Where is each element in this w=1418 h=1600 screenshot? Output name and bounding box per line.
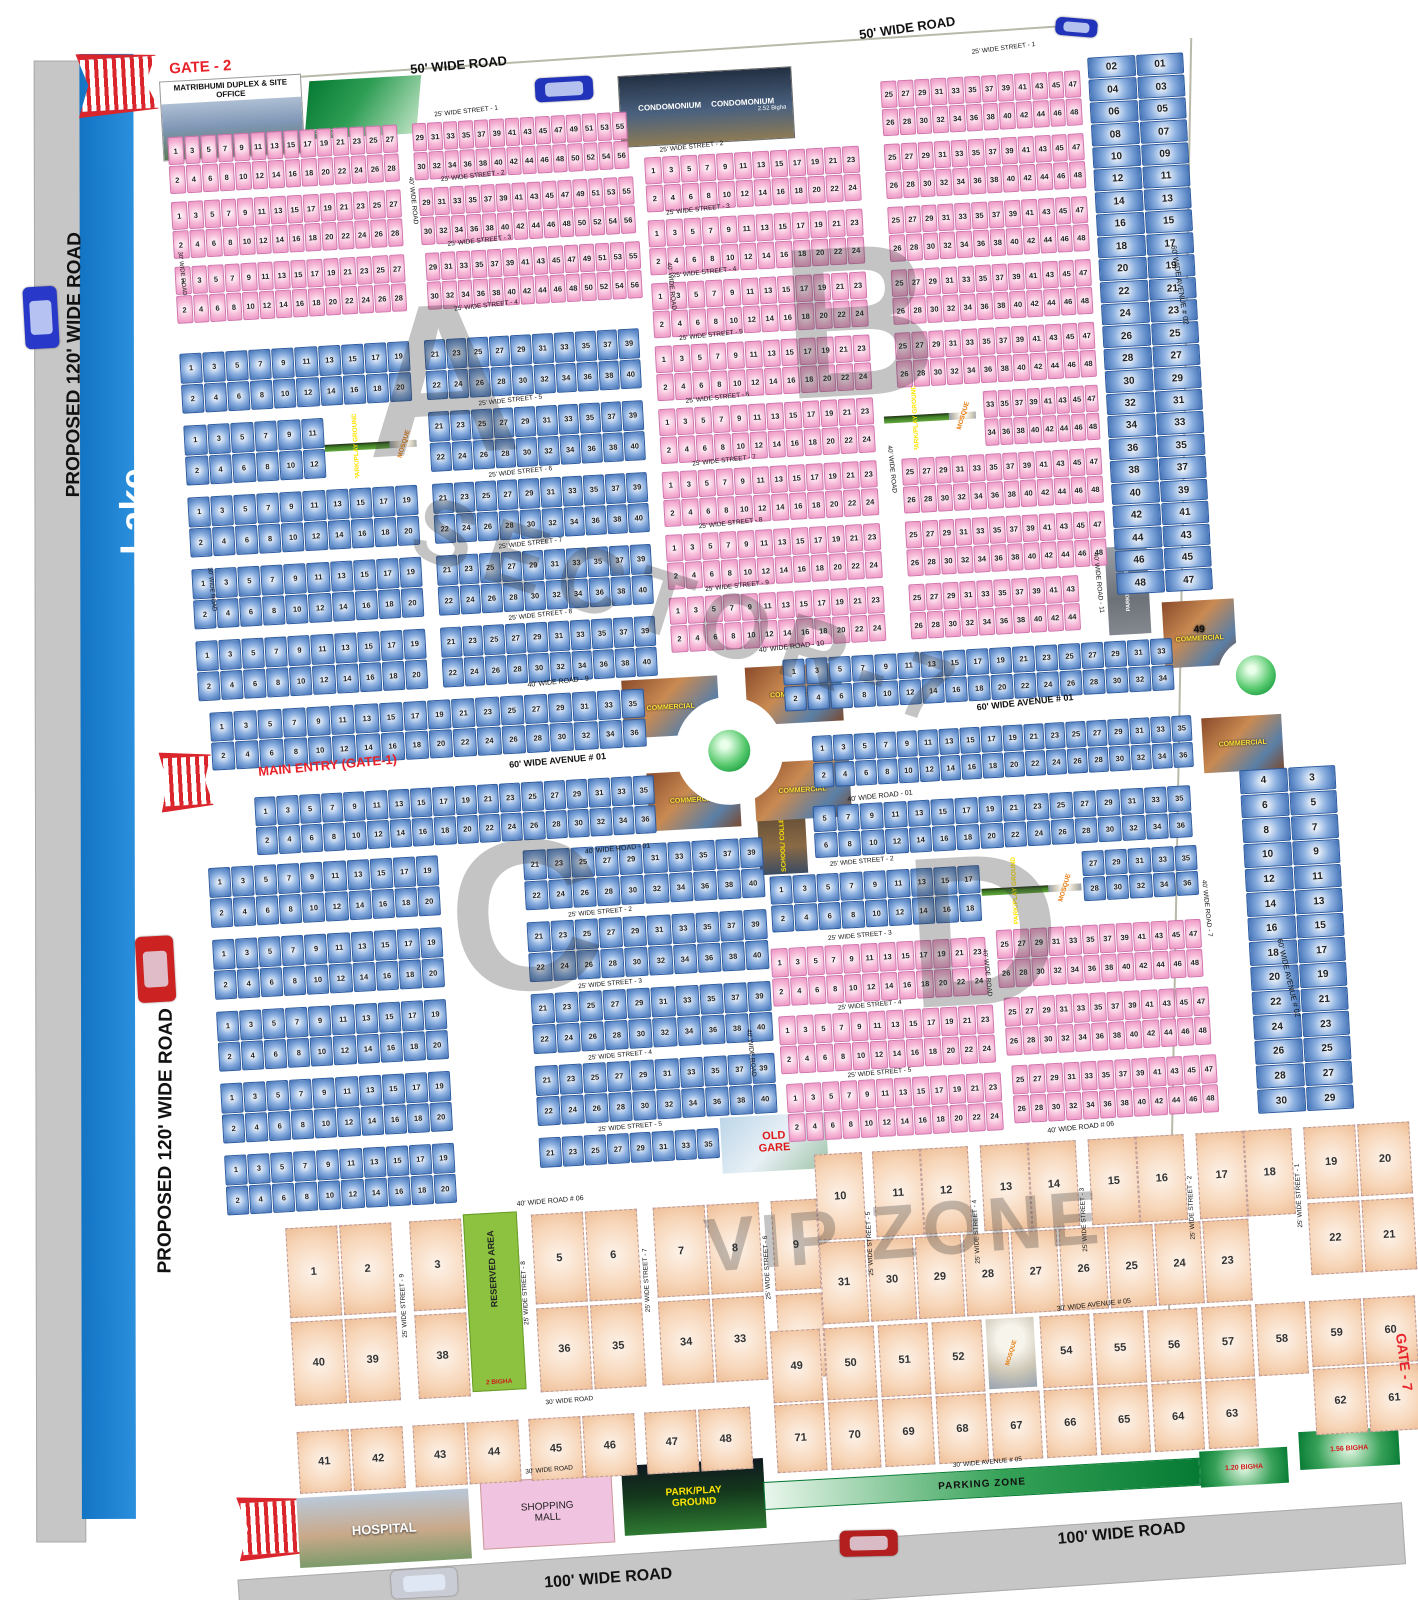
plot-cell: 54: [598, 141, 614, 170]
plot-cell: 12: [870, 1040, 889, 1069]
plot-cell: 22: [453, 727, 478, 757]
plot-block: 135791113151719212324681012141618202224: [655, 334, 873, 401]
plot-cell: 39: [1131, 1058, 1149, 1087]
plot-cell: 48: [1066, 98, 1083, 126]
plot-cell: 1: [812, 735, 834, 762]
plot-cell: 25: [901, 458, 918, 486]
plot-cell: 21: [966, 1073, 985, 1102]
plot-cell: 35: [583, 474, 605, 505]
plot-block: 2527293133353739414345472628303234363840…: [996, 919, 1204, 988]
plot-cell: 1: [658, 408, 676, 436]
plot-cell: 11: [295, 346, 319, 377]
plot-cell: 48: [1202, 1084, 1220, 1113]
plot-cell: 26: [473, 439, 495, 470]
plot-cell: 30: [1257, 1088, 1306, 1114]
plot-cell: 23: [1044, 722, 1066, 749]
plot-cell: 34: [567, 578, 589, 609]
vip-plot: 21: [1361, 1197, 1417, 1272]
vip-plot: 64: [1151, 1381, 1205, 1452]
plot-cell: 30: [516, 437, 538, 468]
plot-cell: 39: [618, 328, 640, 359]
plot-cell: 7: [248, 349, 272, 380]
plot-cell: 9: [896, 730, 918, 757]
vip-plot: 25: [1106, 1224, 1157, 1308]
plot-cell: 14: [352, 961, 376, 992]
plot-cell: 11: [748, 403, 766, 431]
plot-cell: 26: [997, 959, 1015, 988]
plot-cell: 47: [1084, 385, 1099, 413]
road-label: 40' WIDE ROAD # 06: [516, 1195, 583, 1208]
plot-cell: 4: [189, 229, 206, 258]
vip-plot: 48: [698, 1407, 753, 1472]
plot-cell: 17: [930, 1075, 949, 1104]
plot-cell: 31: [1128, 847, 1152, 873]
plot-cell: 41: [1148, 1057, 1166, 1086]
plot-cell: 2: [656, 373, 674, 401]
plot-cell: 32: [653, 1017, 678, 1048]
plot-cell: 29: [935, 456, 952, 484]
plot-cell: 19: [813, 273, 831, 301]
plot-cell: 27: [505, 623, 527, 654]
plot-cell: 4: [241, 1040, 265, 1071]
plot-cell: 26: [469, 367, 491, 398]
plot-block: 2123252729313335373922242628303234363840: [436, 544, 654, 616]
plot-cell: 35: [471, 250, 487, 279]
plot-cell: 23: [984, 1072, 1003, 1101]
plot-cell: 8: [255, 451, 279, 482]
plot-cell: 9: [308, 1005, 332, 1036]
plot-cell: 53: [597, 112, 613, 141]
plot-cell: 27: [524, 694, 549, 724]
plot-cell: 13: [759, 276, 777, 304]
plot-cell: 4: [685, 561, 703, 589]
plot-cell: 34: [956, 230, 973, 258]
plot-cell: 10: [310, 1036, 334, 1067]
plot-block: 2123252729313335373922242628303234363840: [527, 909, 770, 982]
plot-cell: 17: [306, 259, 323, 288]
plot-cell: 15: [931, 798, 955, 825]
plot-cell: 7: [719, 531, 737, 559]
plot-cell: 54: [605, 206, 621, 235]
plot-cell: 6: [816, 1043, 835, 1072]
plot-cell: 54: [611, 271, 627, 300]
plot-cell: 17: [372, 486, 396, 517]
plot-cell: 20: [807, 176, 825, 204]
plot-cell: 46: [1071, 413, 1086, 441]
plot-cell: 13: [752, 151, 770, 179]
plot-cell: 7: [217, 134, 234, 163]
plot-cell: 36: [990, 544, 1007, 572]
plot-cell: 19: [432, 1143, 456, 1174]
plot-cell: 20: [397, 515, 421, 546]
plot-cell: 29: [412, 123, 428, 152]
plot-cell: 13: [776, 591, 794, 619]
plot-cell: 16: [945, 676, 968, 703]
plot-cell: 1: [655, 345, 673, 373]
plot-cell: 10: [289, 665, 313, 696]
park-play-label: PARK/PLAY GROUND: [653, 1484, 734, 1510]
plot-cell: 01: [1136, 52, 1185, 76]
plot-cell: 28: [1256, 1063, 1305, 1089]
plot-cell: 40: [1002, 165, 1019, 193]
vip-plot: 2: [339, 1222, 396, 1315]
plot-cell: 46: [1070, 476, 1087, 504]
plot-cell: 56: [627, 270, 643, 299]
plot-cell: 4: [212, 526, 236, 557]
plot-cell: 3: [788, 947, 807, 976]
plot-cell: 1: [209, 711, 234, 741]
plot-cell: 37: [473, 119, 489, 148]
mosque: MOSQUE: [390, 439, 419, 448]
plot-cell: 12: [735, 180, 753, 208]
plot-cell: 40: [1133, 1087, 1151, 1116]
plot-cell: 28: [490, 366, 512, 397]
plot-cell: 27: [501, 551, 523, 582]
plot-cell: 35: [1097, 1060, 1115, 1089]
plot-cell: 7: [289, 1079, 313, 1110]
plot-cell: 34: [963, 356, 980, 384]
plot-cell: 4: [674, 372, 692, 400]
plot-cell: 32: [533, 363, 555, 394]
plot-cell: 15: [341, 344, 365, 375]
mosque-label: MOSQUE: [956, 400, 971, 430]
plot-cell: 9: [1292, 839, 1341, 865]
vip-plot: 62: [1313, 1366, 1369, 1435]
plot-cell: 7: [875, 732, 897, 759]
plot-cell: 39: [489, 118, 505, 147]
road-label: 40' WIDE ROAD # 06: [1047, 1121, 1114, 1135]
plot-cell: 24: [357, 285, 374, 314]
plot-cell: 34: [677, 1015, 702, 1046]
plot-cell: 26: [580, 1021, 605, 1052]
plot-cell: 13: [907, 800, 931, 827]
plot-cell: 21: [848, 587, 866, 615]
plot-cell: 21: [845, 524, 863, 552]
plot-cell: 19: [315, 128, 332, 157]
vip-plot: 40: [290, 1319, 347, 1406]
plot-row: 2123252729313335: [539, 1128, 720, 1168]
plot-cell: 5: [813, 805, 837, 832]
plot-cell: 6: [855, 759, 877, 786]
plot-cell: 31: [1120, 788, 1144, 815]
plot-cell: 35: [994, 579, 1012, 607]
plot-cell: 27: [1013, 928, 1031, 957]
plot-cell: 10: [865, 899, 889, 928]
plot-cell: 24: [857, 425, 875, 453]
plot-cell: 26: [903, 486, 920, 514]
plot-cell: 12: [302, 448, 326, 479]
plot-cell: 14: [911, 896, 935, 925]
plot-cell: 22: [839, 426, 857, 454]
plot-cell: 35: [1157, 433, 1206, 457]
plot-cell: 3: [796, 1015, 815, 1044]
plot-cell: 16: [288, 224, 305, 253]
vip-plot: 29: [915, 1235, 966, 1319]
plot-cell: 11: [744, 340, 762, 368]
plot-cell: 22: [836, 363, 854, 391]
plot-cell: 25: [996, 929, 1014, 958]
plot-cell: 38: [1116, 1088, 1134, 1117]
plot-cell: 20: [821, 427, 839, 455]
plot-cell: 34: [669, 872, 694, 903]
plot-cell: 34: [681, 1087, 706, 1118]
plot-cell: 25: [521, 781, 544, 811]
plot-cell: 23: [551, 920, 576, 951]
plot-cell: 11: [257, 262, 274, 291]
plot-cell: 2: [197, 671, 221, 702]
plot-cell: 30: [1032, 957, 1050, 986]
plot-cell: 7: [321, 792, 344, 822]
plot-cell: 50: [581, 273, 597, 302]
plot-cell: 16: [782, 366, 800, 394]
plot-cell: 32: [932, 106, 949, 134]
plot-cell: 5: [237, 566, 261, 597]
plot-cell: 14: [760, 304, 778, 332]
plot-cell: 27: [599, 917, 624, 948]
plot-cell: 17: [795, 274, 813, 302]
car-icon: [391, 1567, 458, 1599]
plot-cell: 17: [396, 928, 420, 959]
plot-cell: 40: [1006, 228, 1023, 256]
plot-cell: 23: [559, 1064, 584, 1095]
plot-cell: 11: [330, 705, 355, 735]
plot-block: 2123252729313335373922242628303234363840: [535, 1053, 778, 1126]
plot-cell: 1: [778, 1016, 797, 1045]
plot-cell: 33: [951, 140, 968, 168]
plot-cell: 27: [1152, 344, 1201, 368]
plot-cell: 27: [921, 520, 938, 548]
plot-cell: 44: [1113, 526, 1162, 550]
plot-pair-row: 3029: [1257, 1085, 1354, 1114]
plot-cell: 7: [709, 342, 727, 370]
plot-cell: 2: [663, 499, 681, 527]
plot-cell: 27: [897, 80, 914, 108]
plot-cell: 36: [979, 355, 996, 383]
plot-cell: 25: [579, 990, 604, 1021]
plot-cell: 19: [948, 1074, 967, 1103]
car-icon: [22, 286, 59, 350]
plot-cell: 13: [358, 1075, 382, 1106]
plot-cell: 17: [1297, 937, 1346, 963]
plot-cell: 44: [1057, 414, 1072, 442]
plot-cell: 14: [268, 160, 285, 189]
plot-block: 2527293133353739414345472628303234363840…: [1011, 1054, 1219, 1123]
plot-cell: 29: [917, 141, 934, 169]
plot-cell: 31: [934, 141, 951, 169]
plot-cell: 4: [237, 968, 261, 999]
plot-cell: 46: [1115, 548, 1164, 572]
plot-block: 135791113151719212324681012141618202224: [786, 1072, 1004, 1142]
plot-cell: 10: [285, 594, 309, 625]
plot-cell: 37: [988, 201, 1005, 229]
road-label: 25' WIDE STREET - 1: [971, 41, 1035, 56]
plot-cell: 3: [676, 407, 694, 435]
plot-cell: 16: [383, 1104, 407, 1135]
plot-cell: 22: [952, 967, 971, 996]
plot-pair-row: 4847: [1116, 568, 1213, 595]
plot-cell: 4: [688, 624, 706, 652]
plot-cell: 17: [403, 701, 428, 731]
plot-cell: 42: [1046, 604, 1064, 632]
plot-cell: 24: [978, 1034, 997, 1063]
plot-cell: 29: [418, 187, 434, 216]
plot-cell: 39: [1159, 478, 1208, 502]
plot-cell: 18: [789, 177, 807, 205]
plot-cell: 35: [985, 453, 1002, 481]
plot-cell: 6: [818, 901, 842, 930]
plot-cell: 23: [462, 625, 484, 656]
commercial-label: COMMERCIAL: [1218, 739, 1267, 749]
vip-plot: 7: [653, 1205, 710, 1298]
plot-cell: 21: [831, 272, 849, 300]
plot-cell: 25: [584, 1134, 607, 1165]
plot-cell: 32: [1057, 1024, 1075, 1053]
plot-cell: 31: [651, 986, 676, 1017]
plot-cell: 11: [917, 729, 939, 756]
plot-cell: 25: [887, 206, 904, 234]
plot-cell: 29: [548, 693, 573, 723]
plot-cell: 17: [299, 129, 316, 158]
plot-cell: 33: [972, 517, 989, 545]
plot-cell: 8: [218, 163, 235, 192]
plot-cell: 35: [699, 984, 724, 1015]
plot-cell: 19: [428, 1071, 452, 1102]
plot-cell: 46: [1184, 1085, 1202, 1114]
plot-cell: 5: [684, 218, 702, 246]
plot-cell: 38: [989, 229, 1006, 257]
plot-cell: 32: [537, 435, 559, 466]
plot-cell: 23: [547, 848, 572, 879]
plot-cell: 23: [453, 482, 475, 513]
plot-cell: 23: [1301, 1011, 1350, 1037]
plot-cell: 36: [581, 433, 603, 464]
plot-cell: 7: [293, 1151, 317, 1182]
plot-cell: 37: [715, 838, 740, 869]
plot-cell: 28: [1022, 1025, 1040, 1054]
plot-cell: 20: [401, 587, 425, 618]
plot-cell: 24: [560, 1094, 585, 1125]
plot-cell: 41: [1041, 387, 1056, 415]
plot-cell: 39: [1011, 326, 1028, 354]
plot-cell: 9: [858, 1079, 877, 1108]
plot-cell: 23: [976, 1004, 995, 1033]
plot-cell: 24: [1027, 820, 1051, 847]
vip-plot: 49: [770, 1329, 824, 1404]
plot-cell: 25: [583, 1062, 608, 1093]
plot-cell: 2: [646, 185, 664, 213]
plot-cell: 32: [935, 168, 952, 196]
plot-cell: 49: [572, 179, 588, 208]
plot-cell: 48: [1087, 476, 1104, 504]
plot-cell: 46: [1060, 288, 1077, 316]
plot-cell: 44: [1152, 950, 1170, 979]
plot-cell: 6: [243, 668, 267, 699]
reserved-area: RESERVED AREA 2 BIGHA: [463, 1211, 527, 1392]
plot-block: 2527293133353739414345472628303234363840…: [905, 510, 1108, 576]
plot-cell: 34: [952, 168, 969, 196]
plot-cell: 19: [830, 588, 848, 616]
plot-cell: 02: [1087, 55, 1136, 79]
plot-cell: 38: [729, 1085, 754, 1116]
plot-cell: 46: [1074, 539, 1091, 567]
plot-cell: 27: [385, 189, 402, 218]
plot-cell: 28: [898, 107, 915, 135]
plot-cell: 6: [209, 293, 226, 322]
plot-cell: 14: [356, 1033, 380, 1064]
plot-cell: 32: [961, 609, 979, 637]
plot-cell: 25: [372, 255, 389, 284]
plot-cell: 21: [527, 921, 552, 952]
plot-cell: 8: [283, 965, 307, 996]
plot-cell: 29: [623, 916, 648, 947]
plot-block: 2527293133353739414345472628303234363840…: [884, 133, 1087, 199]
plot-cell: 18: [402, 1031, 426, 1062]
plot-cell: 28: [390, 283, 407, 312]
plot-cell: 9: [842, 944, 861, 973]
plot-cell: 4: [678, 435, 696, 463]
plot-cell: 48: [1069, 161, 1086, 189]
plot-cell: 14: [275, 290, 292, 319]
plot-cell: 13: [334, 632, 358, 663]
plot-cell: 52: [589, 207, 605, 236]
plot-cell: 13: [878, 942, 897, 971]
plot-cell: 5: [200, 135, 217, 164]
plot-cell: 29: [522, 550, 544, 581]
plot-cell: 18: [793, 239, 811, 267]
road-label: 40' WIDE ROAD - 7: [1200, 880, 1213, 938]
plot-cell: 47: [1200, 1054, 1218, 1083]
plot-cell: 24: [350, 155, 367, 184]
plot-cell: 28: [1083, 876, 1107, 902]
plot-cell: 29: [1096, 789, 1120, 816]
plot-cell: 26: [485, 655, 507, 686]
plot-cell: 10: [279, 450, 303, 481]
vip-plot: 57: [1201, 1305, 1255, 1380]
plot-cell: 18: [406, 1103, 430, 1134]
plot-cell: 11: [860, 943, 879, 972]
mosque-label: MOSQUE: [397, 429, 412, 459]
plot-cell: 20: [433, 1173, 457, 1204]
plot-cell: 13: [773, 528, 791, 556]
plot-cell: 4: [1239, 768, 1288, 794]
plot-cell: 5: [816, 873, 840, 902]
plot-block: 135791113151719212324681012141618202224: [658, 397, 876, 464]
plot-cell: 36: [1176, 870, 1200, 896]
plot-cell: 30: [936, 484, 953, 512]
condomonium-label: CONDOMONIUM: [638, 100, 702, 113]
plot-block: 2123252729313335373922242628303234363840: [432, 472, 650, 544]
plot-cell: 6: [706, 623, 724, 651]
plot-cell: 34: [1107, 414, 1156, 438]
plot-cell: 36: [1083, 954, 1101, 983]
plot-cell: 18: [410, 1175, 434, 1206]
plot-cell: 8: [826, 974, 845, 1003]
plot-cell: 30: [929, 358, 946, 386]
plot-cell: 23: [866, 586, 884, 614]
plot-cell: 43: [1038, 198, 1055, 226]
plot-cell: 27: [1028, 1064, 1046, 1093]
plot-cell: 17: [380, 630, 404, 661]
plot-cell: 12: [304, 520, 328, 551]
plot-cell: 39: [1026, 388, 1041, 416]
plot-block: 2527293133353739414345472628303234363840…: [1004, 986, 1212, 1055]
plot-cell: 3: [207, 423, 231, 454]
plot-cell: 33: [947, 77, 964, 105]
plot-cell: 33: [1151, 846, 1175, 872]
plot-cell: 48: [565, 273, 581, 302]
plot-cell: 17: [966, 648, 989, 675]
plot-cell: 48: [1086, 413, 1101, 441]
